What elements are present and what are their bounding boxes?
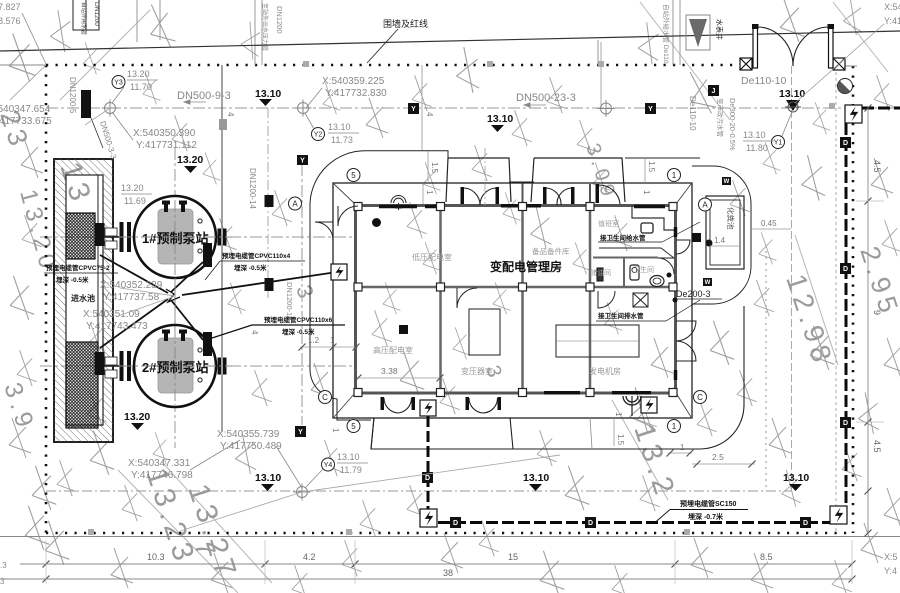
svg-text:DN1200: DN1200 xyxy=(275,6,284,34)
svg-text:1.5: 1.5 xyxy=(647,161,656,173)
svg-text:13.10: 13.10 xyxy=(255,88,281,100)
svg-text:De110-10: De110-10 xyxy=(741,75,786,87)
svg-text:储油间: 储油间 xyxy=(590,268,611,277)
svg-text:13.10: 13.10 xyxy=(779,88,805,100)
svg-text:J: J xyxy=(712,88,716,95)
svg-text:D: D xyxy=(425,475,430,482)
svg-text:Y1: Y1 xyxy=(774,140,783,147)
svg-text:X:540350.390: X:540350.390 xyxy=(133,128,196,139)
svg-text:4: 4 xyxy=(250,330,259,335)
svg-text:1: 1 xyxy=(672,422,677,431)
svg-text:13.20: 13.20 xyxy=(177,154,203,166)
svg-text:DN1200-14: DN1200-14 xyxy=(248,168,257,209)
svg-text:Y:4: Y:4 xyxy=(884,566,897,576)
svg-text:7.827: 7.827 xyxy=(0,2,21,12)
svg-text:1: 1 xyxy=(614,412,623,417)
svg-text:2.5: 2.5 xyxy=(712,452,724,462)
svg-text:DN1200-5: DN1200-5 xyxy=(68,77,77,114)
svg-text:D: D xyxy=(803,520,808,527)
svg-text:13.10: 13.10 xyxy=(337,452,360,462)
svg-text:Y:417733.675: Y:417733.675 xyxy=(0,116,52,127)
svg-text:D: D xyxy=(453,520,458,527)
svg-text:1.5: 1.5 xyxy=(616,434,625,446)
svg-text:Y:417743.473: Y:417743.473 xyxy=(86,321,148,332)
svg-text:X:540351.09: X:540351.09 xyxy=(83,309,140,320)
svg-text:11.70: 11.70 xyxy=(130,82,152,92)
svg-text:De200-3: De200-3 xyxy=(676,289,711,299)
svg-text:W: W xyxy=(705,280,711,286)
svg-text:预埋电缆管CPVC75-2: 预埋电缆管CPVC75-2 xyxy=(46,263,110,272)
svg-text:11.80: 11.80 xyxy=(746,143,768,153)
svg-text:进水池: 进水池 xyxy=(71,293,95,303)
svg-text:10.3: 10.3 xyxy=(147,552,165,562)
svg-text:D: D xyxy=(588,520,593,527)
svg-text:DN1200: DN1200 xyxy=(93,2,100,26)
svg-text:1: 1 xyxy=(672,171,677,180)
svg-text:至站外出水压力管: 至站外出水压力管 xyxy=(261,3,269,51)
svg-text:4.2: 4.2 xyxy=(303,552,316,562)
svg-text:化粪池: 化粪池 xyxy=(726,207,736,230)
svg-text:Y3: Y3 xyxy=(114,80,123,87)
svg-text:X:540347.331: X:540347.331 xyxy=(128,458,191,469)
svg-text:变配电管理房: 变配电管理房 xyxy=(490,259,562,274)
svg-text:De300-20-0.5%: De300-20-0.5% xyxy=(728,98,737,151)
svg-text:Y4: Y4 xyxy=(324,462,333,469)
svg-text:1.2: 1.2 xyxy=(308,336,320,345)
svg-text:DN500-9-3: DN500-9-3 xyxy=(177,90,231,102)
svg-text:低压配电室: 低压配电室 xyxy=(412,252,452,262)
svg-text:Y: Y xyxy=(300,158,305,165)
svg-text:X:5: X:5 xyxy=(884,552,898,562)
svg-text:Y: Y xyxy=(648,106,653,113)
svg-text:De110-10: De110-10 xyxy=(688,96,697,131)
svg-text:1: 1 xyxy=(642,190,651,195)
svg-text:5: 5 xyxy=(351,171,356,180)
svg-text:38: 38 xyxy=(443,568,453,578)
svg-text:9: 9 xyxy=(872,310,882,315)
svg-text:接卫生间给水管: 接卫生间给水管 xyxy=(600,233,646,242)
svg-text:A: A xyxy=(702,200,708,209)
svg-text:预埋电缆管CPVC110x6: 预埋电缆管CPVC110x6 xyxy=(264,315,333,324)
svg-text:0.45: 0.45 xyxy=(761,219,777,228)
svg-text:Y:417732.830: Y:417732.830 xyxy=(325,88,387,99)
svg-text:埋深 -0.5米: 埋深 -0.5米 xyxy=(282,327,315,336)
svg-text:预埋电缆管SC150: 预埋电缆管SC150 xyxy=(680,499,737,508)
svg-text:13.20: 13.20 xyxy=(124,411,150,423)
svg-text:W: W xyxy=(724,179,730,185)
svg-text:X:54: X:54 xyxy=(884,2,900,12)
svg-text:1: 1 xyxy=(331,428,340,433)
svg-text:13.20: 13.20 xyxy=(127,69,150,79)
svg-text:3: 3 xyxy=(0,577,5,586)
svg-text:至市政污水管: 至市政污水管 xyxy=(716,98,725,138)
svg-text:Y:417737.58: Y:417737.58 xyxy=(103,292,160,303)
svg-text:Y: Y xyxy=(411,106,416,113)
svg-text:1: 1 xyxy=(425,190,434,195)
svg-text:水表井: 水表井 xyxy=(715,19,724,40)
svg-text:A: A xyxy=(292,199,298,208)
svg-text:埋深 -0.7米: 埋深 -0.7米 xyxy=(688,512,724,521)
svg-text:4: 4 xyxy=(226,112,235,117)
svg-text:埋深 -0.5米: 埋深 -0.5米 xyxy=(56,275,89,284)
svg-text:13.10: 13.10 xyxy=(523,472,549,484)
svg-text:D: D xyxy=(843,420,848,427)
svg-text:Y:417750.489: Y:417750.489 xyxy=(220,441,282,452)
svg-text:D: D xyxy=(843,266,848,273)
svg-text:自站外给水管 De110: 自站外给水管 De110 xyxy=(662,4,671,64)
svg-text:1: 1 xyxy=(330,336,335,345)
svg-text:11.69: 11.69 xyxy=(124,196,146,206)
svg-text:D: D xyxy=(843,140,848,147)
svg-text:Y:417731.112: Y:417731.112 xyxy=(136,140,197,151)
svg-text:高压配电室: 高压配电室 xyxy=(373,345,413,355)
svg-text:8.576: 8.576 xyxy=(0,16,21,26)
svg-text:4: 4 xyxy=(425,112,434,117)
svg-text:4.5: 4.5 xyxy=(872,440,882,453)
svg-text:1.4: 1.4 xyxy=(714,236,726,245)
svg-text:13.10: 13.10 xyxy=(743,130,766,140)
svg-text:11.79: 11.79 xyxy=(340,465,362,475)
svg-text:接卫生间排水管: 接卫生间排水管 xyxy=(598,311,644,320)
svg-text:13.10: 13.10 xyxy=(328,122,351,132)
svg-text:5: 5 xyxy=(351,422,356,431)
svg-text:3.38: 3.38 xyxy=(381,366,398,376)
svg-text:发电机房: 发电机房 xyxy=(589,366,621,376)
svg-text:DN500-23-3: DN500-23-3 xyxy=(516,92,576,104)
svg-text:8.5: 8.5 xyxy=(760,552,773,562)
svg-text:C: C xyxy=(322,393,328,402)
svg-text:13.10: 13.10 xyxy=(783,472,809,484)
svg-text:X:540355.739: X:540355.739 xyxy=(217,429,280,440)
svg-text:13.10: 13.10 xyxy=(255,472,281,484)
svg-text:13.20: 13.20 xyxy=(121,183,144,193)
svg-text:1.5: 1.5 xyxy=(430,162,439,174)
svg-text:Y:41: Y:41 xyxy=(884,16,900,26)
svg-text:DN1200-18: DN1200-18 xyxy=(285,282,294,320)
svg-text:4.5: 4.5 xyxy=(872,160,882,173)
svg-text:15: 15 xyxy=(508,552,518,562)
svg-text:自站外用水管: 自站外用水管 xyxy=(80,2,88,36)
svg-text:值班室: 值班室 xyxy=(598,219,619,228)
svg-text:X:540347.654: X:540347.654 xyxy=(0,104,51,115)
svg-text:预埋电缆管CPVC110x4: 预埋电缆管CPVC110x4 xyxy=(222,251,291,260)
svg-text:变压器室: 变压器室 xyxy=(461,366,493,376)
svg-text:11.73: 11.73 xyxy=(331,135,353,145)
svg-text:备品备件库: 备品备件库 xyxy=(532,246,570,256)
svg-text:Y:417746.798: Y:417746.798 xyxy=(131,470,193,481)
svg-text:1: 1 xyxy=(680,443,685,452)
svg-text:.3: .3 xyxy=(0,561,7,570)
svg-text:X:540359.225: X:540359.225 xyxy=(322,76,385,87)
svg-text:Y2: Y2 xyxy=(314,132,323,139)
svg-text:13.10: 13.10 xyxy=(487,113,513,125)
svg-text:卫生间: 卫生间 xyxy=(633,265,654,274)
svg-text:C: C xyxy=(697,393,703,402)
svg-text:埋深 -0.5米: 埋深 -0.5米 xyxy=(234,263,267,272)
svg-text:围墙及红线: 围墙及红线 xyxy=(383,18,428,29)
svg-text:Y: Y xyxy=(298,429,303,436)
